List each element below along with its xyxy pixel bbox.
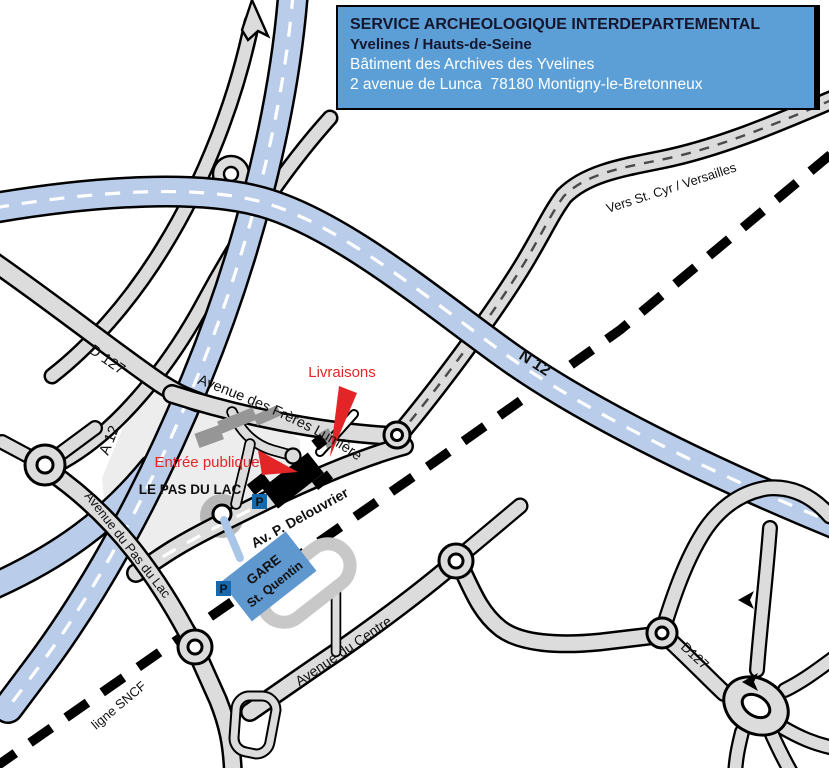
parking-badge-1: P: [252, 494, 267, 509]
title-line3: Bâtiment des Archives des Yvelines: [350, 55, 802, 75]
title-box: SERVICE ARCHEOLOGIQUE INTERDEPARTEMENTAL…: [336, 5, 820, 110]
ramp-arrow-north: [242, 0, 268, 40]
road-vers-st-cyr-centerline: [398, 99, 829, 436]
label-district: LE PAS DU LAC: [139, 482, 242, 497]
road-oval-north: [757, 528, 770, 670]
ramp-loop-inner: [224, 167, 238, 181]
title-line1: SERVICE ARCHEOLOGIQUE INTERDEPARTEMENTAL: [350, 14, 802, 35]
road-vers-st-cyr-casing: [398, 99, 829, 436]
road-east-link-casing: [460, 565, 650, 644]
label-deliveries: Livraisons: [308, 364, 376, 381]
merge-chevron-1: [738, 591, 754, 609]
road-vers-st-cyr: [398, 99, 829, 436]
map-screenshot: GARE St. Quentin P P Livraisons Entrée p…: [0, 0, 829, 768]
label-public-entrance: Entrée publique: [154, 454, 259, 471]
parking-badge-2: P: [216, 581, 231, 596]
parking-letter: P: [219, 582, 227, 596]
label-avenue-du-centre: Avenue du Centre: [292, 613, 394, 689]
parking-letter: P: [255, 495, 263, 509]
title-line2: Yvelines / Hauts-de-Seine: [350, 35, 802, 55]
road-oval-south1: [735, 732, 742, 768]
road-map: GARE St. Quentin P P Livraisons Entrée p…: [0, 0, 829, 768]
road-d127-west: [0, 262, 198, 402]
title-line4: 2 avenue de Lunca 78180 Montigny-le-Bret…: [350, 75, 802, 95]
